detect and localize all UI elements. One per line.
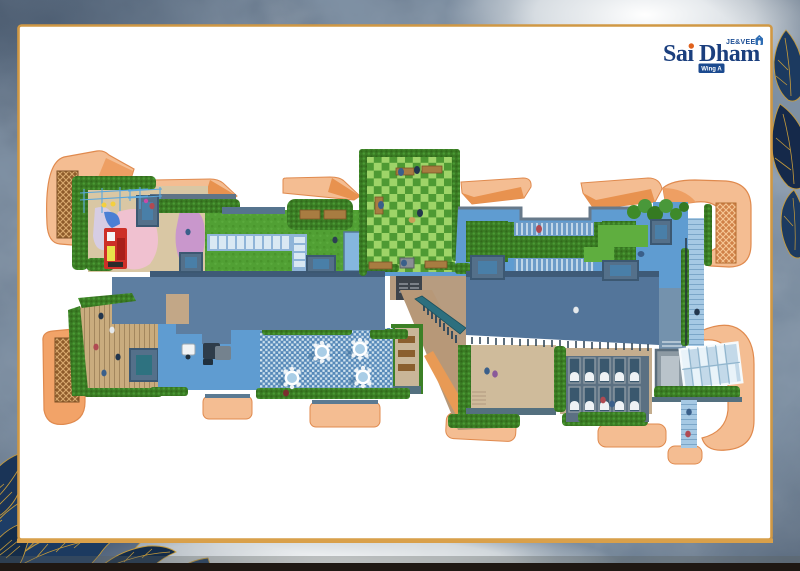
- svg-text:Sai Dham: Sai Dham: [663, 41, 760, 67]
- svg-text:Wing A: Wing A: [701, 67, 722, 73]
